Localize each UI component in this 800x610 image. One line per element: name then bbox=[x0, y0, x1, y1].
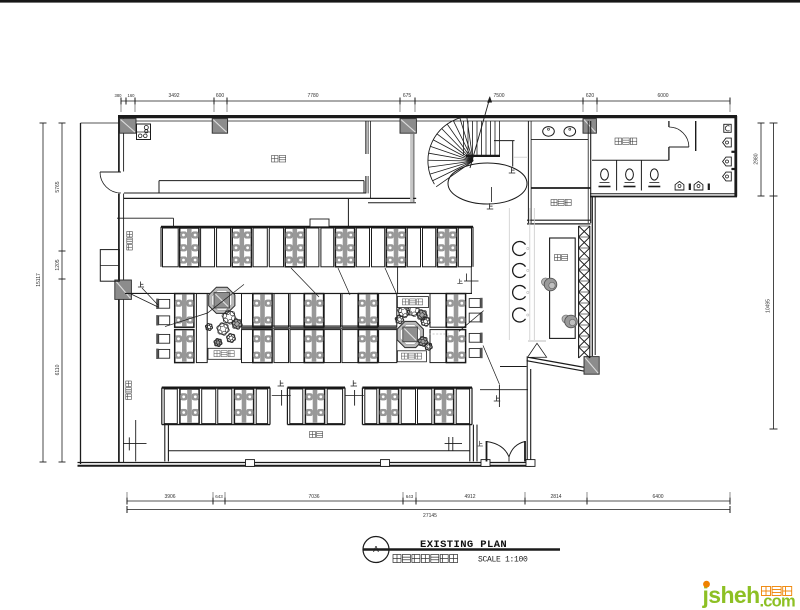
svg-text:6110: 6110 bbox=[55, 364, 61, 375]
svg-text:6400: 6400 bbox=[652, 494, 663, 500]
svg-text:5765: 5765 bbox=[55, 181, 61, 192]
svg-text:3492: 3492 bbox=[168, 93, 179, 99]
svg-text:10495: 10495 bbox=[766, 299, 772, 313]
svg-text:3906: 3906 bbox=[164, 494, 175, 500]
svg-text:7500: 7500 bbox=[493, 93, 504, 99]
svg-text:600: 600 bbox=[216, 93, 225, 99]
svg-text:15117: 15117 bbox=[36, 273, 42, 287]
svg-text:6000: 6000 bbox=[657, 93, 668, 99]
svg-text:7036: 7036 bbox=[308, 494, 319, 500]
svg-text:620: 620 bbox=[586, 93, 595, 99]
svg-text:jsheh: jsheh bbox=[702, 582, 760, 608]
svg-text:4912: 4912 bbox=[464, 494, 475, 500]
svg-text:1205: 1205 bbox=[55, 259, 61, 270]
svg-text:643: 643 bbox=[406, 494, 414, 499]
svg-text:643: 643 bbox=[215, 494, 223, 499]
svg-text:675: 675 bbox=[403, 93, 412, 99]
svg-text:2814: 2814 bbox=[550, 494, 561, 500]
svg-text:7780: 7780 bbox=[307, 93, 318, 99]
svg-text:EXISTING PLAN: EXISTING PLAN bbox=[420, 539, 507, 551]
svg-text:380: 380 bbox=[115, 93, 123, 98]
svg-text:2980: 2980 bbox=[754, 153, 760, 164]
svg-text:SCALE 1:100: SCALE 1:100 bbox=[478, 556, 528, 565]
svg-text:27145: 27145 bbox=[423, 513, 437, 519]
svg-text:160: 160 bbox=[128, 93, 136, 98]
